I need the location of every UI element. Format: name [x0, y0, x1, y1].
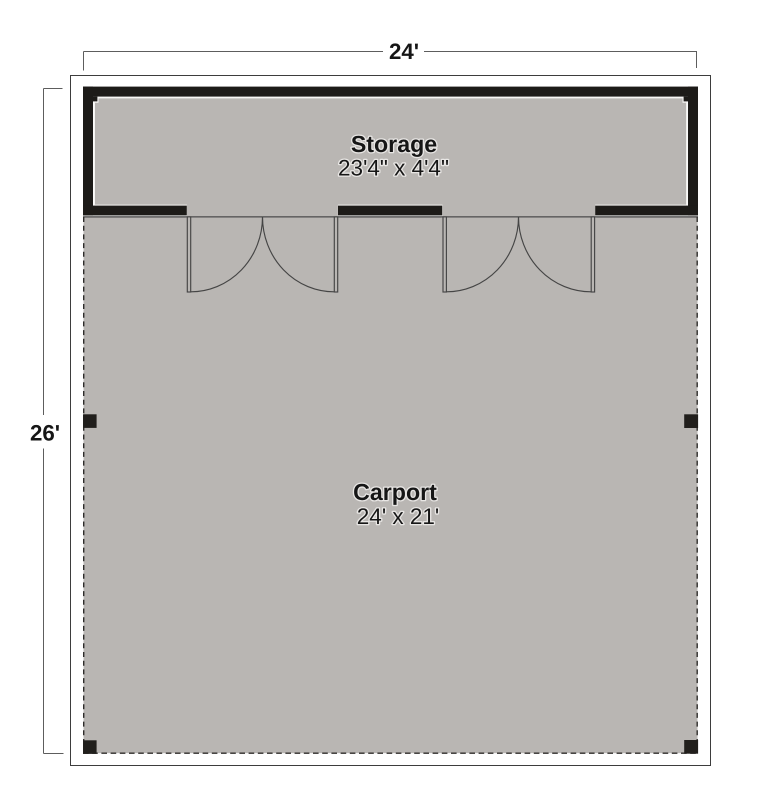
svg-text:24' x 21': 24' x 21': [357, 504, 439, 529]
svg-text:23'4" x 4'4": 23'4" x 4'4": [338, 156, 449, 181]
svg-text:26': 26': [30, 420, 60, 445]
svg-text:Storage: Storage: [351, 131, 437, 157]
svg-text:24': 24': [389, 39, 419, 64]
svg-text:Carport: Carport: [353, 479, 437, 505]
